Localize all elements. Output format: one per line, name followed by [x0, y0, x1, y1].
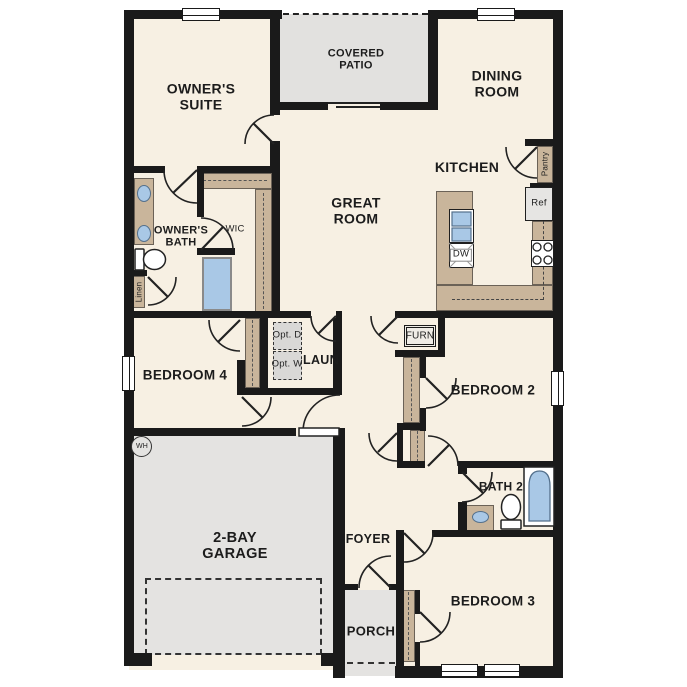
room-label-dining-room: DINING ROOM — [452, 68, 542, 99]
door-bedroom3 — [404, 533, 433, 562]
label-linen: Linen — [135, 282, 144, 303]
door-owners-suite — [245, 115, 274, 144]
room-label-owners-bath: OWNER'S BATH — [139, 225, 224, 250]
doors-and-fixtures-overlay — [0, 0, 687, 687]
door-owners-bath — [164, 170, 197, 203]
label-ref: Ref — [531, 199, 546, 210]
label-pantry: Pantry — [541, 152, 550, 176]
door-bedroom2 — [428, 436, 458, 466]
bathtub — [524, 467, 554, 526]
room-label-foyer: FOYER — [346, 532, 391, 546]
door-hall-linen — [369, 433, 397, 461]
room-label-bedroom4: BEDROOM 4 — [143, 367, 227, 382]
label-furnace: FURN — [406, 330, 435, 341]
floor-plan: OWNER'S SUITE COVERED PATIO DINING ROOM … — [0, 0, 687, 687]
room-label-bath2: BATH 2 — [477, 480, 525, 493]
cooktop-burners — [533, 243, 552, 264]
kitchen-sink — [452, 212, 471, 241]
label-dw: DW — [450, 249, 472, 262]
room-label-great-room: GREAT ROOM — [311, 195, 401, 226]
room-label-kitchen: KITCHEN — [435, 160, 499, 176]
room-label-garage: 2-BAY GARAGE — [180, 530, 290, 562]
label-opt-washer: Opt. W — [271, 360, 303, 371]
toilet — [135, 249, 166, 270]
label-opt-dryer: Opt. D — [272, 331, 302, 342]
room-label-laundry: LAUN — [303, 353, 339, 367]
label-wic: WIC — [225, 225, 244, 236]
door-owners-linen — [148, 277, 176, 305]
room-label-covered-patio: COVERED PATIO — [316, 48, 396, 73]
patio-slider-door — [328, 103, 380, 107]
door-furnace — [371, 316, 398, 343]
door-hall-to-garage-hall — [242, 397, 271, 426]
door-pantry — [506, 147, 537, 178]
door-bedroom4 — [209, 320, 240, 351]
label-water-heater: WH — [136, 443, 148, 451]
room-label-porch: PORCH — [347, 625, 395, 640]
front-door — [359, 556, 391, 588]
door-bedroom3-closet — [420, 612, 450, 642]
door-laundry — [311, 316, 336, 341]
room-label-bedroom3: BEDROOM 3 — [451, 593, 535, 608]
door-garage-entry — [299, 395, 340, 436]
room-label-bedroom2: BEDROOM 2 — [451, 382, 535, 397]
toilet — [501, 495, 521, 530]
room-label-owners-suite: OWNER'S SUITE — [146, 81, 256, 112]
